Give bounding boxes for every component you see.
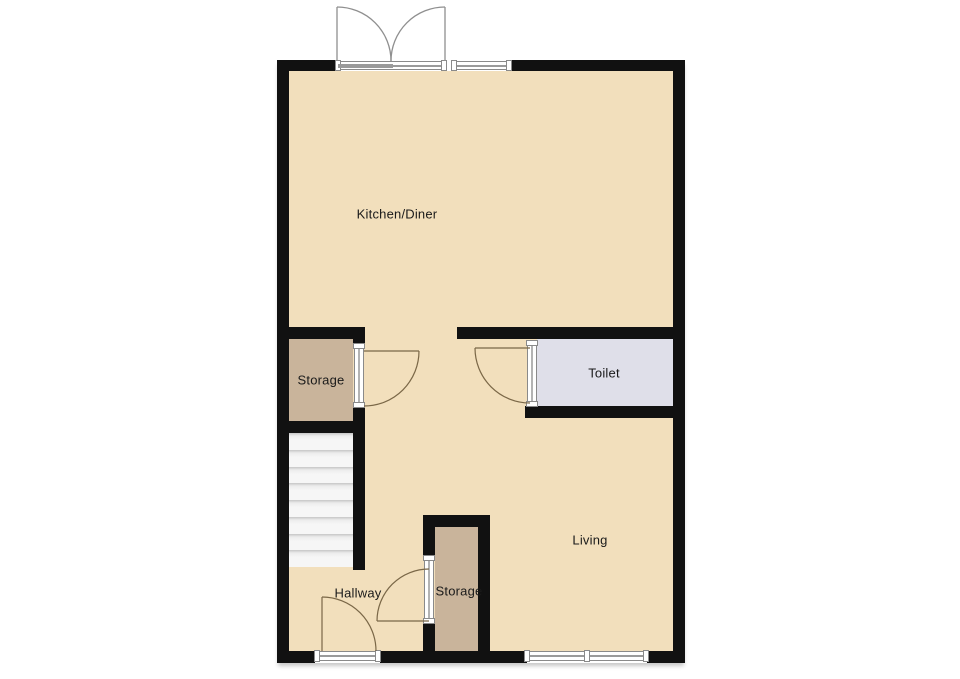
wall-bottom-exterior [647, 651, 685, 663]
floor-plan-page: Kitchen/Diner Storage Toilet Living Hall… [0, 0, 960, 679]
stair-tread [289, 450, 353, 467]
label-hallway: Hallway [335, 586, 382, 601]
stair-tread [289, 517, 353, 534]
stair-tread [289, 550, 353, 567]
label-storage-lower: Storage [436, 584, 483, 599]
wall-toilet-bottom [525, 406, 685, 418]
stair-tread [289, 433, 353, 450]
label-living: Living [572, 533, 607, 548]
floor-plan: Kitchen/Diner Storage Toilet Living Hall… [277, 60, 685, 663]
window-top [452, 61, 511, 70]
door-frame-storage-upper [354, 344, 364, 407]
wall-left-exterior [277, 60, 289, 663]
wall-right-exterior [673, 60, 685, 663]
staircase [289, 433, 353, 567]
entry-double-door-threshold [336, 61, 446, 70]
wall-storage-upper-top [277, 327, 365, 339]
entry-door-arc-right [391, 7, 445, 61]
wall-stairs-right [353, 407, 365, 570]
window-mullion [584, 650, 590, 662]
entry-double-door [337, 7, 445, 61]
entry-door-arc-left [337, 7, 391, 61]
label-storage-upper: Storage [298, 373, 345, 388]
door-leaf [338, 64, 393, 68]
wall-bottom-exterior [380, 651, 527, 663]
wall-top-exterior [277, 60, 337, 71]
label-kitchen-diner: Kitchen/Diner [357, 207, 438, 222]
stair-tread [289, 534, 353, 551]
window-bottom [525, 651, 648, 661]
wall-storage-lower-left [423, 527, 435, 557]
wall-storage-upper-bottom [277, 421, 365, 433]
front-door-threshold [315, 651, 380, 661]
wall-storage-lower-left [423, 623, 435, 651]
label-toilet: Toilet [588, 366, 620, 381]
stair-tread [289, 483, 353, 500]
door-frame-toilet [527, 341, 537, 406]
stair-tread [289, 500, 353, 517]
wall-top-exterior [511, 60, 685, 71]
wall-bottom-exterior [277, 651, 315, 663]
door-frame-storage-lower [424, 556, 434, 623]
wall-toilet-top [457, 327, 685, 339]
stair-tread [289, 467, 353, 484]
